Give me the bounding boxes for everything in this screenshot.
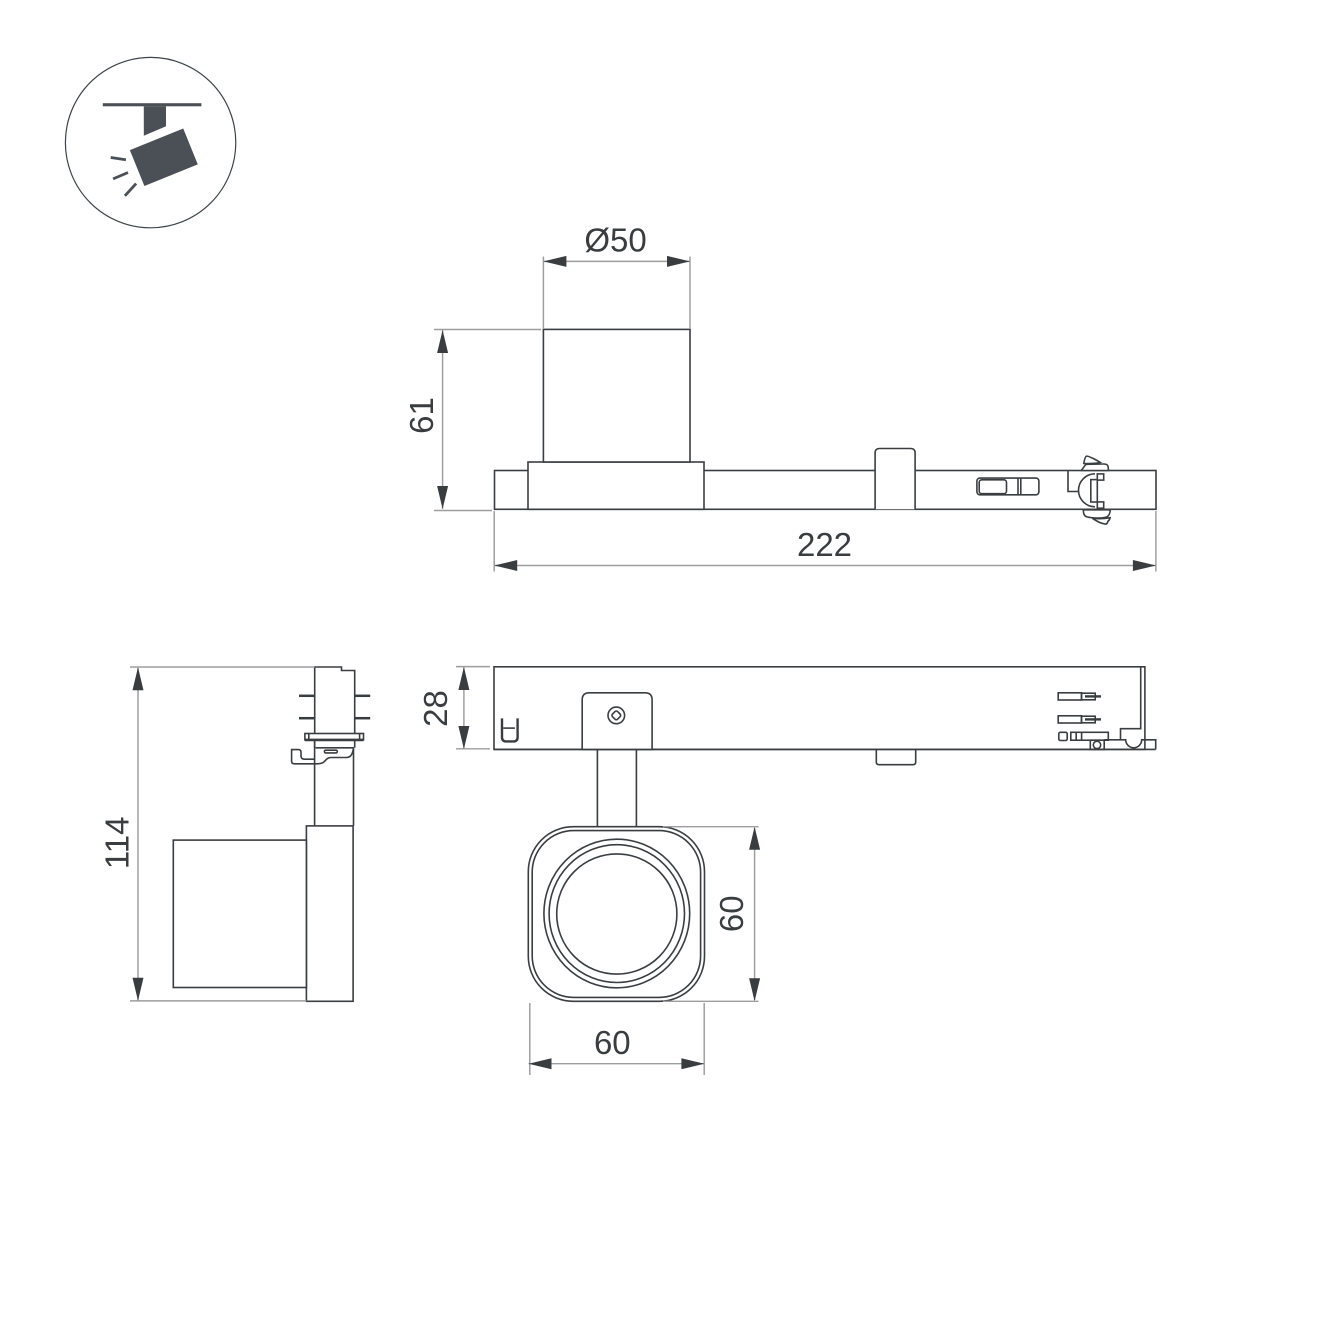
- svg-text:114: 114: [99, 816, 136, 869]
- svg-text:60: 60: [713, 895, 750, 932]
- svg-text:Ø50: Ø50: [584, 221, 646, 258]
- svg-text:61: 61: [403, 397, 440, 434]
- svg-text:222: 222: [797, 526, 852, 563]
- svg-text:28: 28: [417, 690, 454, 727]
- svg-text:60: 60: [594, 1024, 631, 1061]
